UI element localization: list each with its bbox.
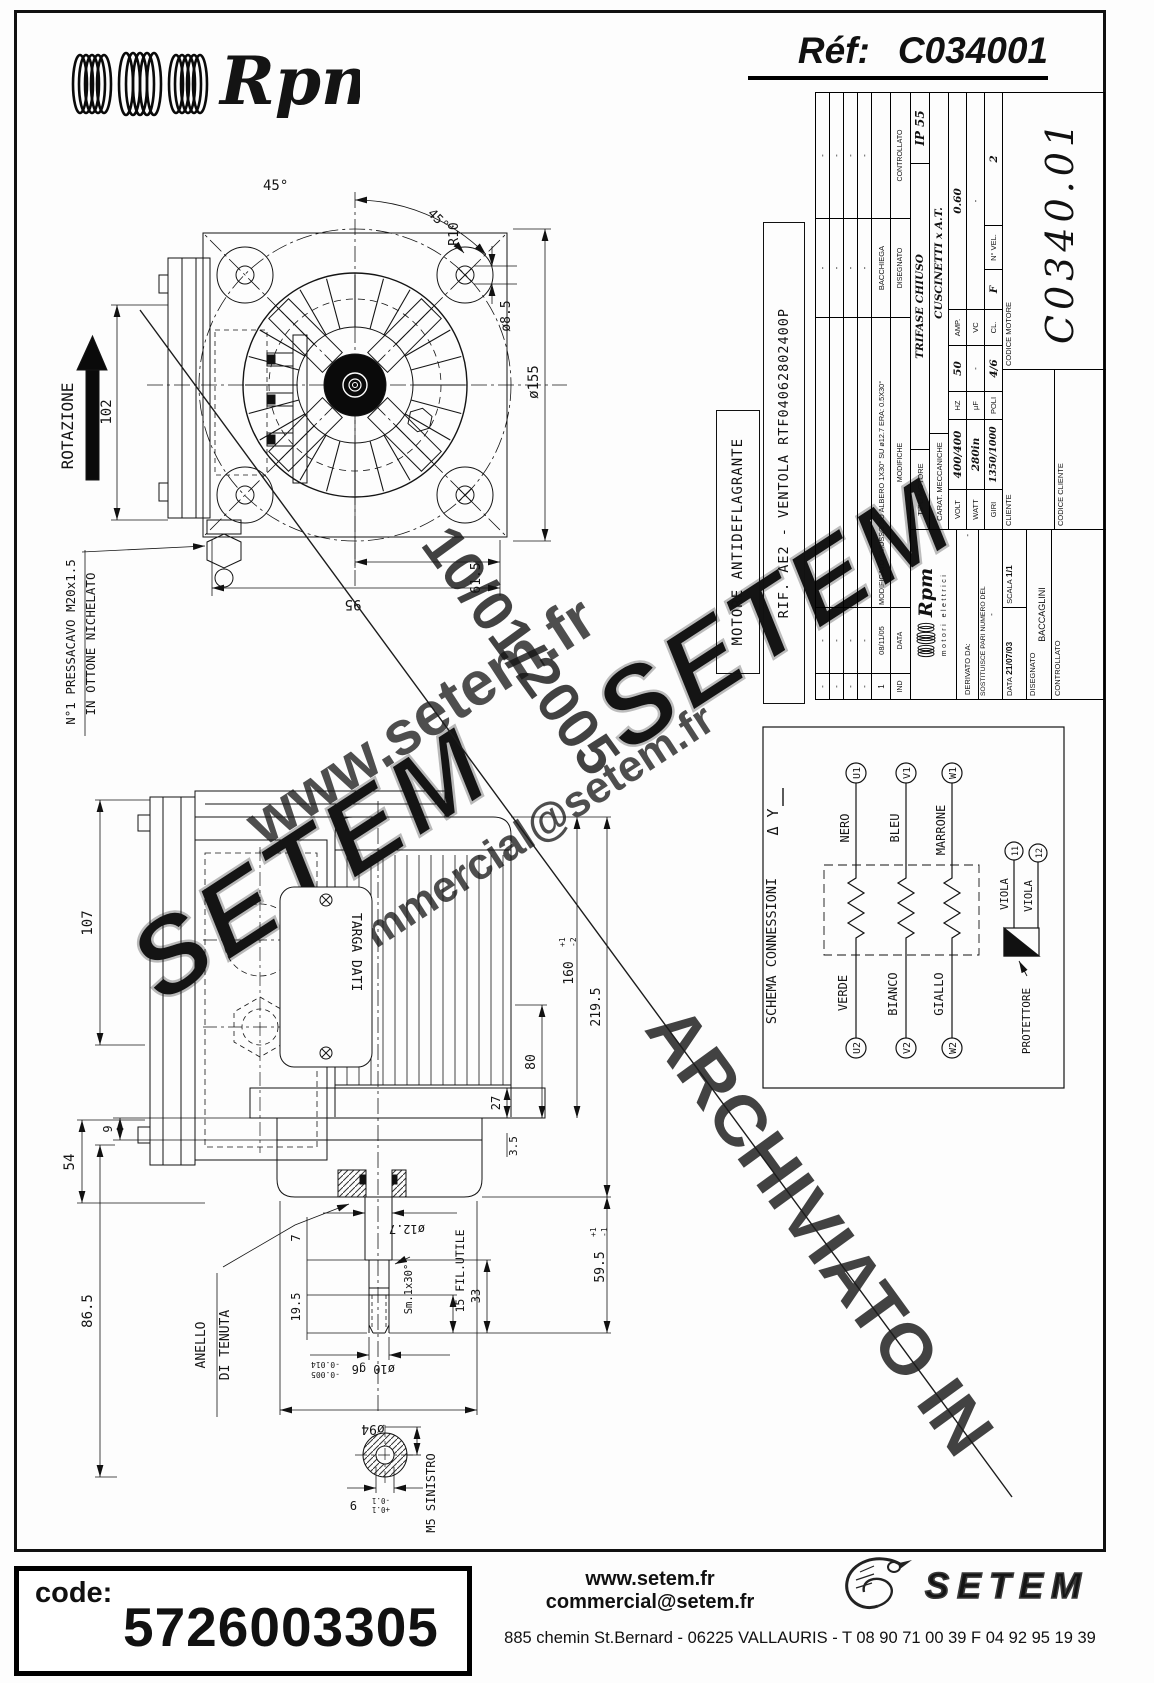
motor-windings <box>848 872 960 944</box>
dim-dia12-7: ø12.7 <box>389 1222 425 1236</box>
terminal-u2: U2 <box>852 1042 863 1054</box>
title-block: - - - - - - - - - - - <box>815 92 1105 700</box>
tb-codice-motore-cell: CODICE MOTORE C0340.01 <box>1003 93 1106 369</box>
front-view-drawing: ROTAZIONE 102 95 61.5 ø155 ø8.5 R10 45° … <box>55 120 655 760</box>
tb-coils-icon <box>915 621 937 661</box>
schema-title: SCHEMA CONNESSIONI <box>764 878 780 1024</box>
svg-text:+1: +1 <box>589 1227 598 1237</box>
svg-text:-1: -1 <box>600 1227 609 1237</box>
ip-rating: IP 55 <box>911 93 929 163</box>
svg-text:+1: +1 <box>558 937 567 947</box>
motor-data-table: TIPO MOTORE TRIFASE CHIUSO IP 55 CARAT. … <box>911 93 1003 529</box>
footer-site: www.setem.fr <box>500 1568 800 1591</box>
bracket-lug <box>437 467 493 523</box>
tb-volt-row: VOLT 400/400 HZ 50 AMP. 0.60 <box>949 93 967 529</box>
wire-verde: VERDE <box>836 975 850 1011</box>
terminal-w1: W1 <box>948 767 959 779</box>
schema-symbols: Δ Y <box>764 808 782 835</box>
svg-text:-0.014: -0.014 <box>311 1360 340 1369</box>
dim-102: 102 <box>99 399 115 424</box>
terminal-box-profile <box>159 258 307 587</box>
tb-disegnato: DISEGNATO BACCAGLINI <box>1027 530 1052 699</box>
tb-watt-row: WATT 280in µF - VC - <box>967 93 985 529</box>
tb-giri-row: GIRI 1350/1000 POLI 4/6 CL. F N° VEL. 2 <box>985 93 1003 529</box>
revision-row: - - - - <box>858 93 872 699</box>
revision-row: - - - - <box>844 93 858 699</box>
setem-brand-text: SETEM <box>925 1565 1089 1606</box>
motor-type-label: MOTORE ANTIDEFLAGRANTE <box>730 438 746 645</box>
tb-logo-cell: Rpm motori elettrici <box>911 530 957 699</box>
terminal-12: 12 <box>1035 848 1045 858</box>
svg-text:-0.1: -0.1 <box>372 1496 390 1505</box>
title-block-left-column: Rpm motori elettrici DERIVATO DA: - SOST… <box>911 529 1106 699</box>
dim-95: 95 <box>345 596 362 612</box>
tb-logo-subtitle: motori elettrici <box>941 530 948 699</box>
rpm-logo: Rpm <box>30 22 360 122</box>
rif-label: RIF. AE2 - VENTOLA RTF04062802400P <box>776 308 792 618</box>
ref-value: C034001 <box>898 30 1048 71</box>
terminal-u1: U1 <box>852 767 863 779</box>
wire-marrone: MARRONE <box>934 805 948 856</box>
terminal-11: 11 <box>1011 846 1021 856</box>
setem-logo: SETEM <box>830 1550 1140 1640</box>
tb-controllato: CONTROLLATO <box>1052 530 1106 699</box>
dim-107: 107 <box>80 910 96 935</box>
motor-type-box: MOTORE ANTIDEFLAGRANTE <box>716 410 760 674</box>
terminal-v1: V1 <box>902 767 913 779</box>
rpm-coils-icon <box>73 53 207 115</box>
code-label: code: <box>35 1577 112 1610</box>
connection-schema: SCHEMA CONNESSIONI Δ Y U1 V1 W1 U2 V2 W2… <box>762 726 1066 1090</box>
mounting-plate-side <box>138 797 195 1165</box>
ref-label: Réf: <box>798 30 870 71</box>
rotation-label: ROTAZIONE <box>58 383 77 470</box>
setem-swan-icon <box>847 1559 912 1608</box>
wire-nero: NERO <box>838 814 852 843</box>
svg-text:ø10 g6: ø10 g6 <box>352 1362 395 1376</box>
rif-box: RIF. AE2 - VENTOLA RTF04062802400P <box>763 222 805 704</box>
tb-cliente-cell: CLIENTE <box>1003 370 1055 529</box>
revision-table: - - - - - - - - - - - <box>816 93 911 699</box>
thread-note: M5 SINISTRO <box>424 1453 438 1532</box>
terminal-w2: W2 <box>948 1042 959 1054</box>
name-plate-label: TARGA DATI <box>348 913 363 991</box>
revision-row: - - - - <box>830 93 844 699</box>
revision-header-row: IND DATA MODIFICHE DISEGNATO CONTROLLATO <box>891 93 911 699</box>
dim-27: 27 <box>489 1096 503 1110</box>
tb-derivato: DERIVATO DA: - <box>957 530 979 699</box>
dim-86-5: 86.5 <box>80 1294 96 1328</box>
dim-3-5: 3.5 <box>507 1136 520 1156</box>
svg-text:+0.1: +0.1 <box>372 1505 390 1514</box>
svg-text:-0.005: -0.005 <box>311 1370 340 1379</box>
dim-9: 9 <box>101 1125 115 1132</box>
thread-length-note: 15 FIL.UTILE <box>453 1229 467 1312</box>
tb-tipo-row: TIPO MOTORE TRIFASE CHIUSO IP 55 <box>911 93 930 529</box>
tb-bottom-band: CLIENTE CODICE CLIENTE CODICE MOTORE C03… <box>1003 93 1106 529</box>
dim-45-a: 45° <box>263 178 288 194</box>
dim-160: 160 +1 -2 <box>558 937 578 985</box>
dim-dia8-5: ø8.5 <box>499 300 514 331</box>
svg-text:160: 160 <box>562 961 577 984</box>
tb-sostituisce: SOSTITUISCE PARI NUMERO DEL - <box>979 530 1003 699</box>
dim-r10: R10 <box>447 222 462 245</box>
gland-note-line1: N°1 PRESSACAVO M20x1.5 <box>63 559 78 725</box>
bracket-top-plates <box>195 791 445 817</box>
dim-dia94: ø94 <box>361 1421 385 1436</box>
tb-carat-row: CARAT. MECCANICHE CUSCINETTI x A.T. <box>930 93 949 529</box>
motor-code-value: C0340.01 <box>1014 93 1106 369</box>
terminal-v2: V2 <box>902 1042 913 1054</box>
shaft-hub <box>324 354 386 416</box>
revision-row: - - - - <box>816 93 830 699</box>
protector-label: PROTETTORE <box>1020 988 1033 1054</box>
dim-7: 7 <box>289 1234 303 1241</box>
svg-text:9: 9 <box>350 1498 357 1512</box>
wire-bianco: BIANCO <box>886 972 900 1015</box>
drawing-sheet: SETEM SETEM www.setem.fr commercial@sete… <box>0 0 1154 1683</box>
dim-33: 33 <box>469 1289 483 1303</box>
code-box: code: 5726003305 <box>14 1566 472 1676</box>
dim-dia155: ø155 <box>526 365 542 399</box>
bracket-lug <box>437 247 493 303</box>
seal-label-1: ANELLO <box>194 1321 209 1368</box>
code-value: 5726003305 <box>123 1595 439 1659</box>
reference-number: Réf:C034001 <box>748 30 1048 80</box>
svg-text:-2: -2 <box>569 937 578 947</box>
dim-59-5: 59.5 +1 -1 <box>589 1227 609 1282</box>
wire-viola-2: VIOLA <box>1023 880 1035 912</box>
footer-email: commercial@setem.fr <box>500 1591 800 1614</box>
svg-text:59.5: 59.5 <box>593 1251 608 1282</box>
chamfer-note: Sm.1x30° <box>403 1264 415 1315</box>
dim-dia10: ø10 g6 -0.005 -0.014 <box>311 1360 395 1379</box>
protector-symbol <box>1004 928 1039 956</box>
footer-contacts: www.setem.fr commercial@setem.fr <box>500 1568 800 1614</box>
seal-label-2: DI TENUTA <box>218 1310 233 1381</box>
dim-9-thread: 9 +0.1 -0.1 <box>350 1496 390 1514</box>
dim-61-5: 61.5 <box>469 562 484 593</box>
dim-54: 54 <box>62 1154 78 1171</box>
tb-data-scala: DATA 21/07/03 SCALA 1/1 <box>1003 530 1027 699</box>
dim-19-5: 19.5 <box>289 1293 303 1322</box>
side-view-drawing: 107 54 9 86.5 ANELLO DI TENUTA TARGA DAT… <box>55 755 715 1555</box>
wire-bleu: BLEU <box>888 814 902 843</box>
dim-80: 80 <box>524 1054 539 1070</box>
tb-codice-cliente-cell: CODICE CLIENTE <box>1055 370 1106 529</box>
wire-giallo: GIALLO <box>932 972 946 1015</box>
tb-logo-script: Rpm <box>915 568 937 617</box>
rpm-logo-script: Rpm <box>218 42 360 120</box>
revision-row-filled: 1 08/11/05 MODIFICATO SMUSSO SU ALBERO 1… <box>872 93 891 699</box>
shaft <box>365 1197 392 1333</box>
wire-viola-1: VIOLA <box>999 878 1011 910</box>
dim-219-5: 219.5 <box>589 987 604 1026</box>
